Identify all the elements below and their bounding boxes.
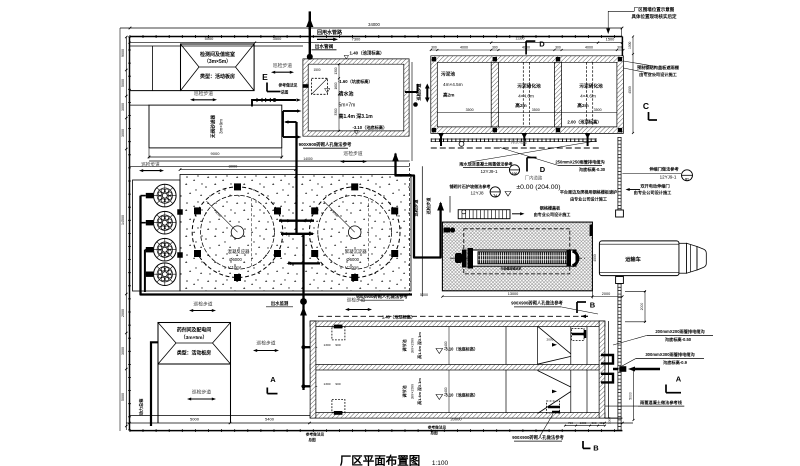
svg-text:5000: 5000 [628, 392, 632, 400]
svg-text:1500: 1500 [606, 37, 615, 42]
svg-text:74: 74 [493, 194, 497, 198]
svg-text:3300: 3300 [334, 108, 338, 115]
svg-text:Ø6000: Ø6000 [229, 257, 242, 262]
svg-text:5000: 5000 [420, 293, 428, 297]
svg-text:12YJ9-1: 12YJ9-1 [660, 175, 677, 180]
svg-text:81: 81 [685, 178, 689, 182]
svg-text:1.40（池顶标高）: 1.40（池顶标高） [382, 313, 415, 320]
svg-text:2000: 2000 [640, 303, 644, 311]
svg-text:出水管阀: 出水管阀 [315, 43, 334, 50]
svg-text:参考做法见: 参考做法见 [428, 424, 447, 429]
svg-text:由专业公司设计施工: 由专业公司设计施工 [534, 211, 571, 217]
svg-text:3000: 3000 [121, 129, 125, 137]
svg-text:双开电动伸缩门: 双开电动伸缩门 [640, 182, 669, 189]
svg-text:钢格栅盖板: 钢格栅盖板 [540, 204, 561, 210]
svg-text:絮凝沉淀器: 絮凝沉淀器 [345, 248, 368, 255]
svg-text:4m×4.5m: 4m×4.5m [443, 82, 463, 87]
svg-text:总图: 总图 [308, 437, 316, 442]
svg-text:900X900砖砌人孔做法参考: 900X900砖砌人孔做法参考 [356, 293, 408, 300]
svg-text:14000: 14000 [303, 157, 312, 161]
svg-text:300: 300 [431, 45, 437, 49]
svg-text:700: 700 [568, 421, 573, 425]
svg-text:Ø6000: Ø6000 [346, 257, 359, 262]
svg-text:沟底标高-0.50: 沟底标高-0.50 [665, 336, 692, 343]
svg-text:12YJ9-1: 12YJ9-1 [480, 169, 498, 174]
svg-text:1600: 1600 [334, 82, 338, 89]
svg-text:2000: 2000 [121, 309, 125, 317]
svg-text:巡检步道: 巡检步道 [141, 161, 160, 168]
svg-text:1500: 1500 [313, 68, 320, 72]
svg-text:（3m×5m）: （3m×5m） [181, 335, 208, 341]
svg-text:B: B [590, 301, 596, 310]
svg-text:调节池: 调节池 [401, 338, 407, 351]
svg-text:具体位置现场核实后定: 具体位置现场核实后定 [632, 13, 677, 20]
svg-text:100: 100 [512, 172, 518, 176]
svg-text:3m×20m: 3m×20m [410, 384, 415, 399]
svg-text:4000: 4000 [460, 45, 468, 49]
svg-text:巡检步道: 巡检步道 [343, 150, 362, 157]
svg-text:巡检步道: 巡检步道 [192, 389, 211, 396]
svg-text:药剂间及配电间: 药剂间及配电间 [177, 327, 211, 334]
svg-text:3500: 3500 [273, 36, 282, 41]
svg-text:200mmX200雨管排电缆沟: 200mmX200雨管排电缆沟 [655, 328, 704, 335]
svg-text:900X900砖砌人孔做法参考: 900X900砖砌人孔做法参考 [299, 141, 352, 148]
svg-text:污泥池: 污泥池 [441, 71, 455, 78]
svg-text:V:10m³: V:10m³ [345, 265, 359, 270]
svg-text:300mmX300雨管排电缆沟: 300mmX300雨管排电缆沟 [645, 351, 694, 358]
svg-text:巡检步道: 巡检步道 [425, 197, 432, 215]
svg-text:巡检步道: 巡检步道 [193, 300, 212, 307]
svg-text:清水池: 清水池 [339, 91, 354, 98]
svg-text:高2m: 高2m [515, 102, 526, 109]
svg-text:900: 900 [335, 343, 340, 347]
svg-text:5400: 5400 [265, 417, 275, 422]
svg-text:由专业公司设计施工: 由专业公司设计施工 [634, 189, 673, 196]
svg-text:3000: 3000 [121, 103, 125, 111]
svg-text:平台周边及爬梯用钢格栅板遮护: 平台周边及爬梯用钢格栅板遮护 [560, 188, 617, 194]
svg-text:8000: 8000 [229, 164, 238, 169]
svg-text:巡检步道: 巡检步道 [256, 340, 275, 347]
svg-text:300: 300 [492, 45, 498, 49]
svg-text:1300: 1300 [324, 382, 331, 386]
svg-text:1000: 1000 [608, 417, 612, 424]
svg-text:回用水管路: 回用水管路 [317, 29, 343, 36]
svg-text:动力总箱: 动力总箱 [138, 398, 145, 416]
svg-text:-1.60（坑底标高）: -1.60（坑底标高） [338, 78, 373, 85]
svg-text:E: E [262, 72, 268, 82]
svg-text:A: A [270, 375, 276, 384]
svg-text:9000: 9000 [121, 49, 125, 57]
svg-text:12YJ8: 12YJ8 [470, 190, 483, 195]
svg-text:4000: 4000 [593, 254, 597, 262]
svg-text:2000: 2000 [547, 338, 554, 342]
svg-text:11300: 11300 [516, 36, 525, 40]
svg-text:34000: 34000 [368, 22, 380, 27]
svg-text:900X900砖砌人孔做法参考: 900X900砖砌人孔做法参考 [511, 300, 563, 307]
svg-text:900X900砖砌人孔做法参考: 900X900砖砌人孔做法参考 [512, 434, 564, 441]
svg-text:V:10m³: V:10m³ [228, 265, 242, 270]
svg-text:高1.4m 深3.1m: 高1.4m 深3.1m [417, 378, 422, 405]
svg-text:出水监测: 出水监测 [271, 300, 289, 307]
svg-text:1300: 1300 [334, 67, 338, 74]
svg-text:3m×20m: 3m×20m [410, 338, 415, 353]
svg-text:总图: 总图 [430, 430, 438, 435]
svg-text:无阀砂滤器: 无阀砂滤器 [210, 115, 217, 139]
svg-text:类型：活动板房: 类型：活动板房 [200, 73, 235, 80]
svg-text:高2m: 高2m [443, 92, 454, 99]
svg-text:4×4.6m: 4×4.6m [518, 94, 534, 99]
svg-text:高1.4m 深3.1m: 高1.4m 深3.1m [339, 113, 374, 120]
svg-text:运输车: 运输车 [625, 255, 641, 263]
svg-text:由专业公司设计施工: 由专业公司设计施工 [570, 195, 607, 201]
svg-text:厂区平面布置图: 厂区平面布置图 [340, 454, 421, 466]
svg-text:D: D [539, 40, 545, 49]
svg-text:厂内道路: 厂内道路 [525, 175, 543, 182]
svg-text:9000: 9000 [211, 151, 221, 156]
svg-text:雨蓖混凝土做法参考线: 雨蓖混凝土做法参考线 [640, 399, 683, 406]
svg-text:300: 300 [617, 45, 623, 49]
svg-text:3500: 3500 [594, 108, 602, 112]
svg-text:厂区围墙位置示意图: 厂区围墙位置示意图 [634, 6, 675, 13]
svg-text:参考做法见: 参考做法见 [306, 431, 325, 436]
svg-text:3400: 3400 [444, 387, 448, 394]
svg-text:1300: 1300 [324, 343, 331, 347]
svg-text:巡检步道: 巡检步道 [273, 62, 292, 69]
svg-text:排水电缆: 排水电缆 [511, 139, 527, 145]
svg-text:2000: 2000 [602, 292, 610, 296]
svg-text:沟底标高-0.30: 沟底标高-0.30 [579, 166, 606, 173]
svg-text:3500: 3500 [532, 108, 540, 112]
svg-text:2.00（池顶标高）: 2.00（池顶标高） [567, 118, 601, 125]
svg-text:由专业公司设计施工: 由专业公司设计施工 [639, 71, 678, 78]
svg-text:300: 300 [591, 421, 596, 425]
svg-text:400: 400 [599, 421, 604, 425]
svg-text:5000: 5000 [121, 393, 125, 401]
svg-text:铺砌片石护坡做法参考: 铺砌片石护坡做法参考 [450, 183, 491, 189]
svg-text:-3.10（池底标高）: -3.10（池底标高） [353, 124, 388, 131]
svg-text:250mmX250雨管排电缆沟: 250mmX250雨管排电缆沟 [555, 158, 604, 165]
svg-text:预制钢结构盖板遮雨棚: 预制钢结构盖板遮雨棚 [637, 64, 679, 71]
svg-text:伸缩门做法参考: 伸缩门做法参考 [648, 166, 679, 173]
svg-text:参考做法见: 参考做法见 [278, 82, 298, 87]
svg-text:5000: 5000 [190, 417, 200, 422]
svg-text:5m×7m: 5m×7m [339, 103, 356, 109]
svg-text:调节池: 调节池 [401, 384, 407, 397]
svg-text:类型：活动板房: 类型：活动板房 [177, 349, 211, 356]
svg-text:高2m: 高2m [577, 102, 588, 109]
svg-text:900: 900 [335, 382, 340, 386]
svg-text:检测间及值班室: 检测间及值班室 [200, 51, 235, 58]
svg-text:3400: 3400 [444, 341, 448, 348]
svg-text:3m×9m: 3m×9m [219, 119, 224, 134]
svg-text:3000: 3000 [121, 347, 125, 355]
svg-text:污泥硝化池: 污泥硝化池 [579, 83, 603, 90]
svg-text:14500: 14500 [121, 215, 125, 225]
svg-text:1000: 1000 [580, 421, 587, 425]
svg-text:4000: 4000 [585, 45, 593, 49]
svg-text:高1.4m 深3.1m: 高1.4m 深3.1m [417, 332, 422, 359]
svg-text:（3m×5m）: （3m×5m） [204, 59, 231, 65]
svg-text:B: B [593, 444, 599, 453]
svg-text:1000: 1000 [628, 41, 632, 49]
svg-text:4500: 4500 [628, 86, 632, 94]
svg-text:总图: 总图 [281, 89, 289, 94]
svg-text:沟底标高-0.9: 沟底标高-0.9 [663, 359, 688, 366]
svg-text:4×4.6m: 4×4.6m [580, 94, 596, 99]
svg-text:5000: 5000 [205, 36, 214, 41]
svg-text:7300: 7300 [352, 37, 361, 42]
svg-text:A: A [676, 375, 682, 384]
svg-text:5000: 5000 [121, 79, 125, 87]
svg-text:1.40（池顶标高）: 1.40（池顶标高） [350, 49, 385, 56]
svg-text:300: 300 [555, 45, 561, 49]
svg-text:D: D [540, 165, 546, 174]
svg-text:雨水现浇混凝土雨蓖做法参考: 雨水现浇混凝土雨蓖做法参考 [459, 161, 512, 167]
svg-text:±0.00 (204.00): ±0.00 (204.00) [516, 184, 560, 191]
svg-text:3500: 3500 [466, 108, 474, 112]
svg-text:巡检步道: 巡检步道 [194, 90, 213, 97]
svg-text:C: C [643, 101, 649, 111]
svg-text:13000: 13000 [508, 292, 519, 296]
svg-text:无轴螺旋输送机: 无轴螺旋输送机 [499, 266, 521, 271]
svg-text:1:100: 1:100 [432, 460, 449, 466]
svg-text:混凝反应器: 混凝反应器 [228, 248, 251, 255]
svg-text:污泥硝化池: 污泥硝化池 [517, 83, 541, 90]
